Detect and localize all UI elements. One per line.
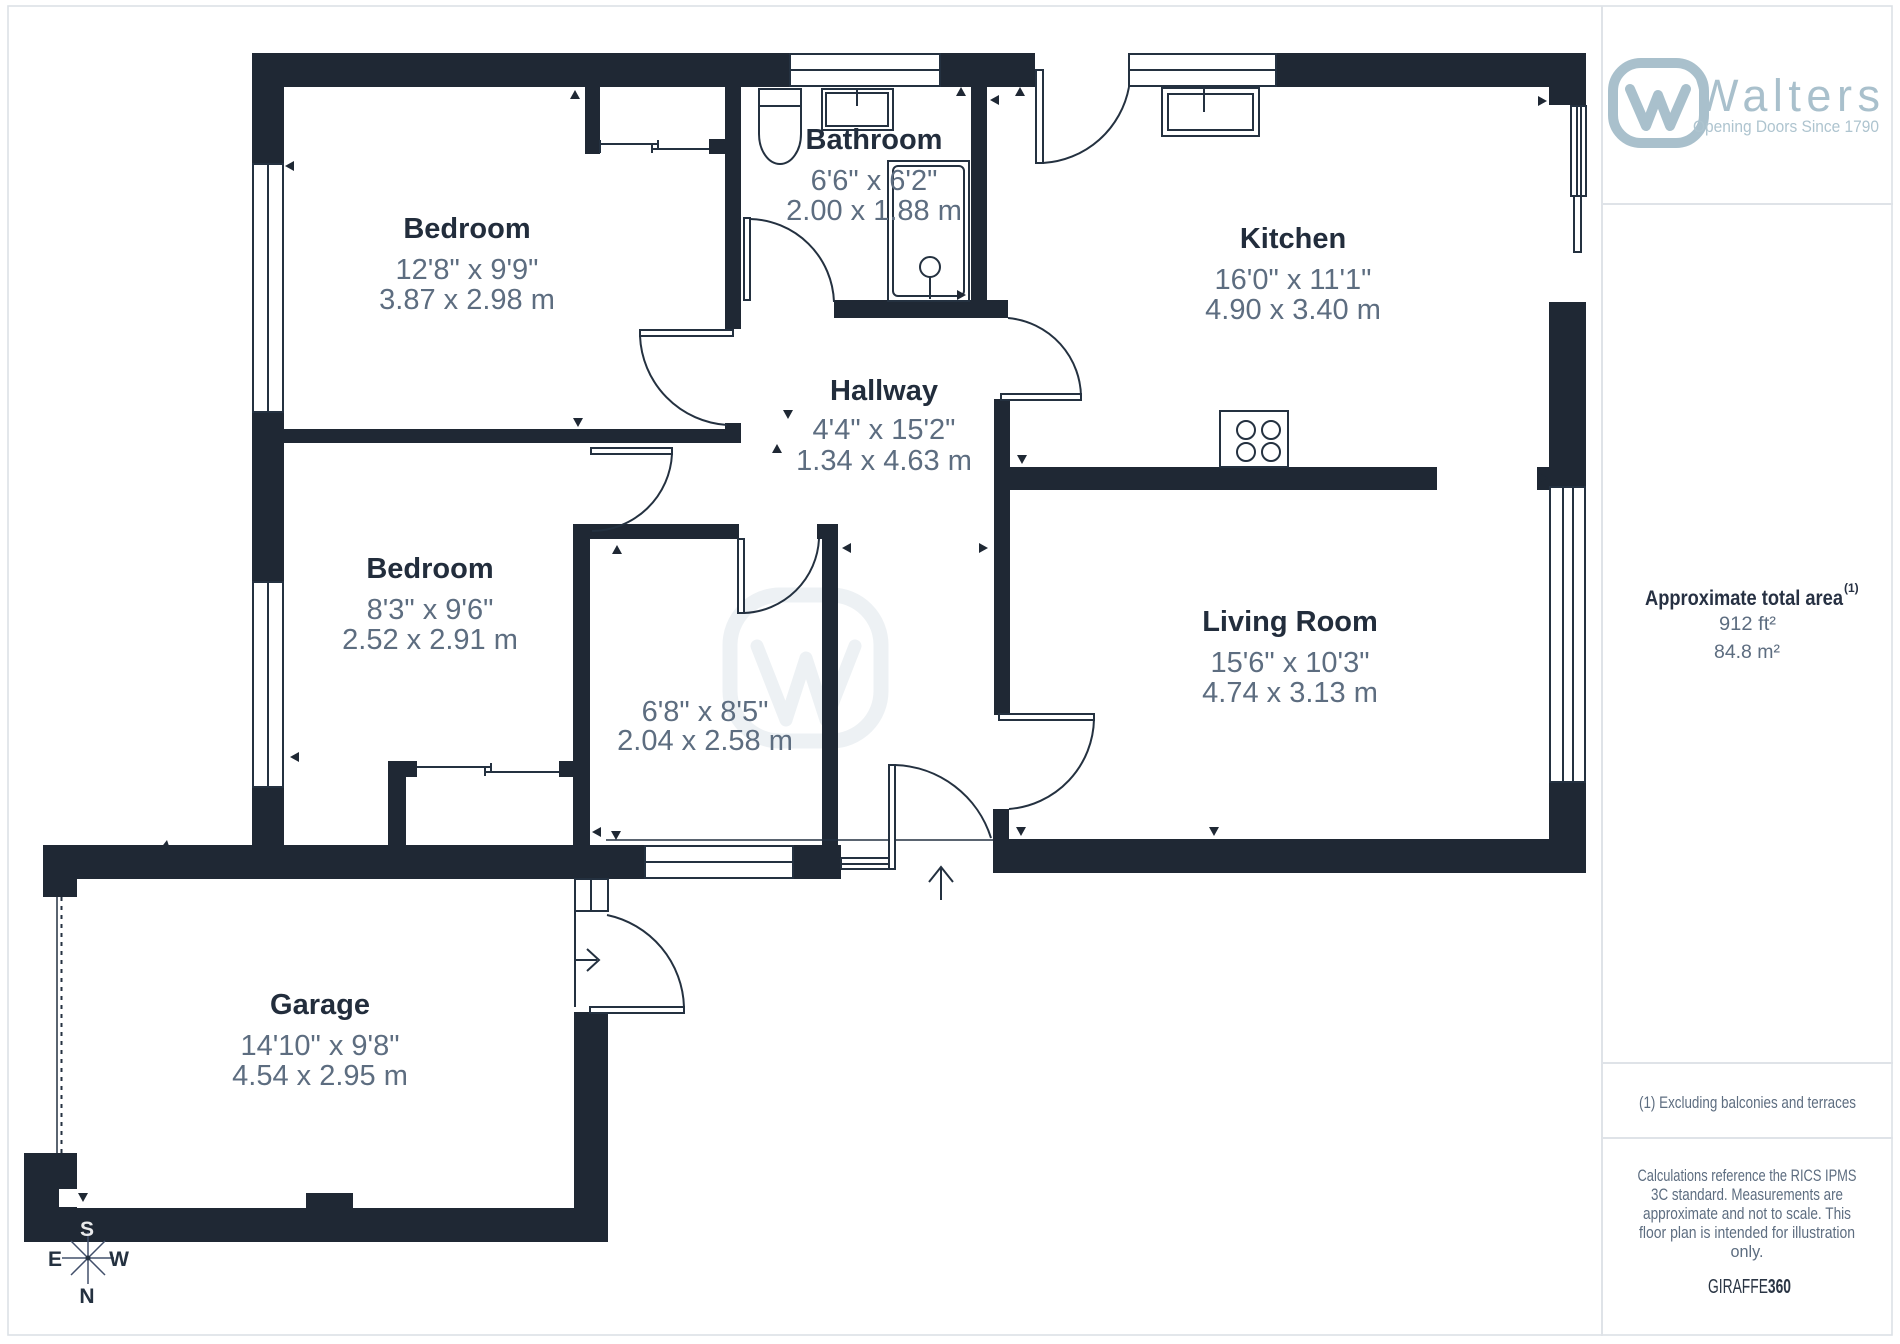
- svg-text:14'10" x 9'8": 14'10" x 9'8": [240, 1030, 399, 1062]
- svg-text:Hallway: Hallway: [830, 375, 938, 407]
- svg-text:Kitchen: Kitchen: [1240, 223, 1346, 255]
- svg-text:S: S: [80, 1218, 94, 1241]
- svg-text:approximate and not to scale.: approximate and not to scale. This: [1643, 1204, 1851, 1223]
- svg-text:2.52 x 2.91 m: 2.52 x 2.91 m: [342, 624, 518, 656]
- svg-text:(1) Excluding balconies and te: (1) Excluding balconies and terraces: [1639, 1093, 1856, 1112]
- svg-text:Bathroom: Bathroom: [806, 124, 943, 156]
- svg-text:Calculations reference the RIC: Calculations reference the RICS IPMS: [1638, 1166, 1857, 1185]
- svg-text:3C standard. Measurements are: 3C standard. Measurements are: [1651, 1185, 1843, 1204]
- svg-text:16'0" x 11'1": 16'0" x 11'1": [1215, 264, 1372, 296]
- svg-text:W: W: [109, 1248, 129, 1271]
- svg-text:4.74 x 3.13 m: 4.74 x 3.13 m: [1202, 677, 1378, 709]
- svg-text:8'3" x 9'6": 8'3" x 9'6": [367, 594, 494, 626]
- svg-text:2.00 x 1.88 m: 2.00 x 1.88 m: [786, 195, 962, 227]
- svg-text:floor plan is intended for ill: floor plan is intended for illustration: [1639, 1223, 1855, 1242]
- svg-text:15'6" x 10'3": 15'6" x 10'3": [1210, 647, 1369, 679]
- svg-text:(1): (1): [1844, 581, 1859, 595]
- svg-text:3.87 x 2.98 m: 3.87 x 2.98 m: [379, 284, 555, 316]
- svg-text:1.34 x 4.63 m: 1.34 x 4.63 m: [796, 445, 972, 477]
- svg-text:N: N: [79, 1285, 94, 1308]
- svg-text:912 ft²: 912 ft²: [1719, 614, 1776, 635]
- svg-text:Living Room: Living Room: [1202, 606, 1378, 638]
- svg-text:E: E: [48, 1248, 62, 1271]
- svg-text:Opening Doors Since 1790: Opening Doors Since 1790: [1693, 117, 1879, 136]
- svg-text:only.: only.: [1731, 1242, 1764, 1261]
- svg-text:4.54 x 2.95 m: 4.54 x 2.95 m: [232, 1060, 408, 1092]
- svg-text:12'8" x 9'9": 12'8" x 9'9": [396, 254, 539, 286]
- svg-text:6'8" x 8'5": 6'8" x 8'5": [642, 696, 769, 728]
- svg-text:GIRAFFE360: GIRAFFE360: [1708, 1276, 1791, 1298]
- svg-text:2.04 x 2.58 m: 2.04 x 2.58 m: [617, 725, 793, 757]
- svg-text:Garage: Garage: [270, 989, 370, 1021]
- svg-text:Approximate total area: Approximate total area: [1645, 587, 1843, 610]
- svg-text:4'4" x 15'2": 4'4" x 15'2": [813, 414, 956, 446]
- svg-text:4.90 x 3.40 m: 4.90 x 3.40 m: [1205, 294, 1381, 326]
- svg-text:6'6" x 6'2": 6'6" x 6'2": [811, 165, 938, 197]
- svg-text:Bedroom: Bedroom: [366, 553, 493, 585]
- svg-text:Bedroom: Bedroom: [403, 213, 530, 245]
- svg-text:84.8 m²: 84.8 m²: [1714, 642, 1780, 663]
